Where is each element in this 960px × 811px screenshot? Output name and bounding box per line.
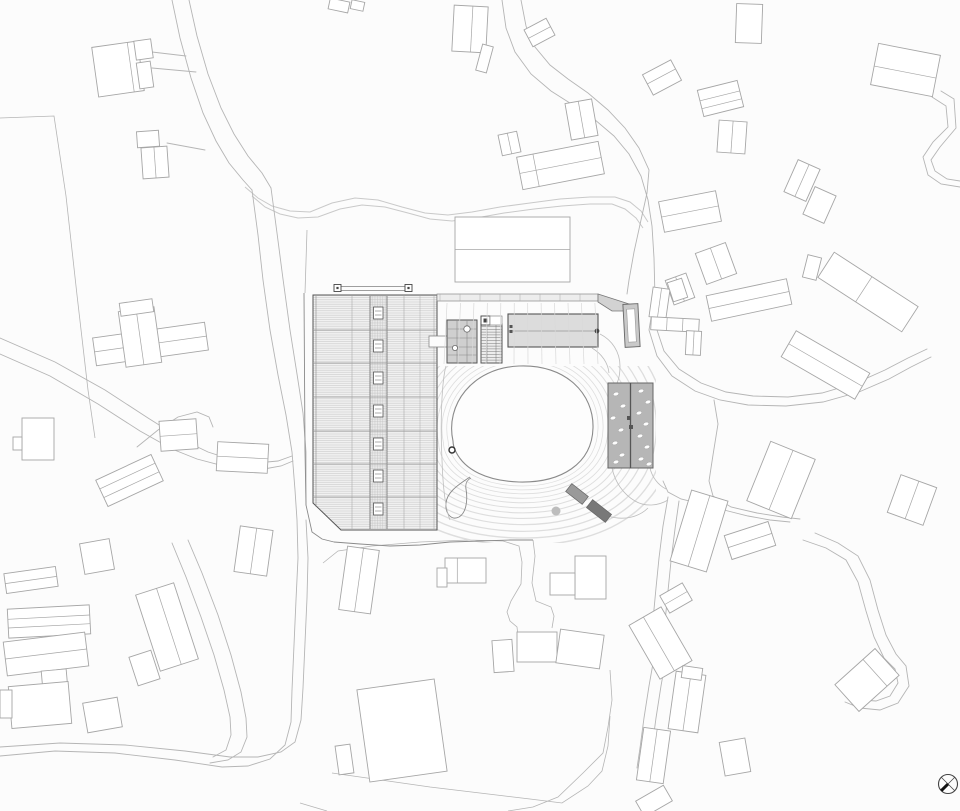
building-outline	[651, 317, 700, 332]
context-building	[83, 697, 123, 733]
building-outline	[719, 738, 751, 776]
gym-building	[508, 314, 599, 347]
context-building	[550, 573, 575, 595]
building-outline	[681, 666, 702, 681]
main-hall	[313, 295, 437, 530]
context-building	[455, 217, 570, 282]
oval-outline	[452, 366, 593, 482]
building-outline	[445, 558, 486, 583]
gym-outline	[508, 314, 598, 347]
context-building	[735, 4, 762, 44]
gym-door-mark	[510, 325, 513, 328]
context-building	[517, 632, 557, 662]
ground-dot	[552, 507, 561, 516]
skylight	[374, 372, 384, 384]
context-building	[357, 679, 447, 782]
building-outline	[556, 629, 604, 669]
parapet-post-dot	[336, 287, 338, 289]
building-outline	[22, 418, 54, 460]
context-building	[0, 690, 12, 718]
gym-door-mark	[510, 330, 513, 333]
context-building	[216, 442, 268, 474]
building-outline	[80, 539, 115, 575]
context-building	[136, 61, 153, 89]
site-plan-svg	[0, 0, 960, 811]
context-building	[565, 99, 598, 140]
skylight	[374, 470, 384, 482]
building-outline	[735, 4, 762, 44]
context-building	[234, 526, 273, 576]
context-building	[134, 39, 153, 60]
building-outline	[13, 437, 22, 450]
site-plan-page: architectural site plan	[0, 0, 960, 811]
building-outline	[357, 679, 447, 782]
building-outline	[83, 697, 123, 733]
east-wall-bar	[623, 304, 640, 348]
skylight-frame	[374, 307, 384, 319]
context-building	[685, 331, 701, 356]
context-building	[80, 539, 115, 575]
pavilion-circle	[452, 345, 457, 350]
context-building	[445, 558, 486, 583]
skylight	[374, 405, 384, 417]
skylight	[374, 340, 384, 352]
context-building	[492, 639, 514, 672]
skylight-frame	[374, 438, 384, 450]
context-building	[13, 437, 22, 450]
context-building	[575, 556, 606, 599]
context-building	[719, 738, 751, 776]
building-outline	[136, 61, 153, 89]
context-building	[651, 317, 700, 332]
planted-pavilion	[608, 383, 653, 468]
oval-entry-ring	[449, 447, 455, 453]
context-building	[681, 666, 702, 681]
skylight	[374, 307, 384, 319]
building-outline	[492, 639, 514, 672]
context-building	[717, 120, 747, 154]
skylight-frame	[374, 503, 384, 515]
building-outline	[575, 556, 606, 599]
stair-pavilion	[481, 316, 502, 363]
skylight-frame	[374, 470, 384, 482]
gym-entry-dot	[595, 329, 600, 334]
east-wall-bar-inner	[627, 309, 637, 342]
parapet-post-dot	[407, 287, 409, 289]
context-building	[498, 131, 521, 155]
skylight-frame	[374, 372, 384, 384]
skylight	[374, 438, 384, 450]
context-building	[141, 146, 169, 179]
building-outline	[8, 681, 71, 728]
planted-door-mark	[627, 416, 631, 420]
building-outline	[550, 573, 575, 595]
skylight	[374, 503, 384, 515]
building-outline	[134, 39, 153, 60]
building-outline	[437, 568, 447, 587]
building-outline	[0, 690, 12, 718]
planted-door-mark	[629, 425, 633, 429]
north-boundary-wall	[437, 294, 598, 301]
context-building	[22, 418, 54, 460]
skylight-frame	[374, 405, 384, 417]
context-building	[437, 568, 447, 587]
north-wall-band	[437, 294, 598, 301]
context-building	[8, 681, 71, 728]
skylight-frame	[374, 340, 384, 352]
context-building	[649, 287, 670, 319]
building-outline	[136, 130, 159, 147]
context-building	[136, 130, 159, 147]
context-building	[556, 629, 604, 669]
building-outline	[517, 632, 557, 662]
context-building	[159, 419, 198, 452]
pavilion-circle	[464, 326, 470, 332]
